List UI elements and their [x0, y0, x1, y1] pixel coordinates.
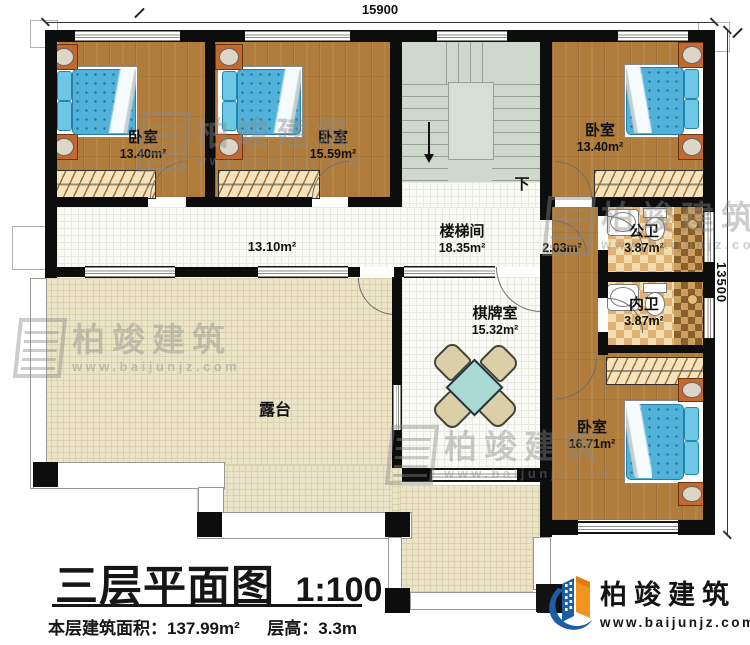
window [392, 385, 402, 430]
wall [394, 267, 404, 277]
wall [540, 197, 555, 207]
room-label-vestibule: 2.03m² [542, 241, 582, 255]
terrace-parapet [33, 462, 225, 489]
window [703, 298, 715, 338]
public-bath-shower-strip [674, 207, 703, 272]
nightstand-icon [678, 482, 706, 506]
blanket-fold [626, 67, 652, 133]
stair-treads [402, 84, 448, 182]
terrace-floor [45, 278, 392, 465]
pillow-icon [684, 441, 699, 475]
room-label-bedroom1: 卧室 13.40m² [120, 130, 167, 161]
terrace-floor-lower-mid [400, 485, 540, 537]
terrace-parapet [410, 592, 539, 610]
wall [390, 42, 402, 197]
window [578, 521, 678, 534]
wall [348, 197, 402, 207]
room-label-stair-hall: 楼梯间 18.35m² [439, 224, 486, 255]
wall [175, 267, 258, 277]
room-label-bedroom4: 卧室 16.71m² [569, 420, 616, 451]
floor-area-value: 137.99m² [167, 619, 240, 638]
floor-height-value: 3.3m [318, 619, 357, 638]
wall [540, 42, 552, 197]
wall [703, 338, 715, 535]
brand-name: 柏竣建筑 [600, 582, 750, 609]
wall [402, 468, 432, 482]
room-label-private-bath: 内卫 3.87m² [624, 297, 664, 328]
column [197, 512, 222, 537]
wall [45, 30, 75, 42]
window [618, 30, 688, 42]
stair-direction-arrowhead-icon [424, 154, 434, 163]
nightstand-icon [678, 134, 706, 160]
room-label-bedroom3: 卧室 13.40m² [577, 123, 624, 154]
wall [45, 267, 85, 277]
wall [392, 277, 402, 385]
wardrobe-icon [594, 170, 704, 199]
wall [392, 430, 402, 468]
dimension-top-line [45, 22, 715, 23]
wardrobe-icon [218, 170, 320, 199]
floor-plan-canvas: 下 卧室 13.40m² [0, 0, 750, 645]
stair-down-label: 下 [514, 176, 529, 193]
title-info: 本层建筑面积：137.99m² 层高：3.3m [48, 614, 357, 639]
window [703, 212, 715, 262]
exterior-platform [12, 226, 48, 270]
terrace-floor-lower-bottom [400, 537, 533, 592]
column [33, 462, 58, 487]
brand-block: 柏竣建筑 www.baijunjz.com [600, 582, 750, 630]
wall [598, 345, 703, 353]
blanket-fold [108, 69, 136, 133]
wall [210, 197, 312, 207]
wall [45, 42, 57, 278]
wall [688, 30, 715, 42]
stair-treads [492, 84, 540, 182]
terrace-parapet [197, 512, 412, 539]
pillow-icon [684, 99, 699, 129]
wall [598, 272, 703, 282]
dimension-right-label: 13500 [714, 262, 729, 303]
wall [348, 267, 360, 277]
nightstand-icon [215, 134, 243, 160]
window [404, 266, 495, 278]
nightstand-icon [678, 378, 706, 402]
room-label-corridor: 13.10m² [248, 240, 296, 255]
floor-drain-icon [687, 219, 698, 230]
pillow-icon [222, 101, 237, 131]
wardrobe-icon [54, 170, 156, 199]
blanket-fold [273, 69, 301, 133]
window [437, 30, 507, 42]
pillow-icon [684, 407, 699, 441]
wall [517, 468, 542, 482]
nightstand-icon [678, 42, 706, 68]
room-label-terrace: 露台 [259, 402, 291, 420]
wall [180, 30, 245, 42]
pillow-icon [684, 69, 699, 99]
pillow-icon [222, 71, 237, 101]
wall [598, 197, 608, 216]
room-label-game-room: 棋牌室 15.32m² [472, 306, 519, 337]
wall [592, 197, 703, 207]
window [75, 30, 180, 42]
wall [507, 30, 618, 42]
blanket-fold [626, 404, 652, 478]
window [258, 266, 348, 278]
wall [350, 30, 437, 42]
private-bath-shower-strip [674, 282, 703, 345]
stair-landing [448, 82, 494, 160]
nightstand-icon [215, 44, 243, 70]
brand-url: www.baijunjz.com [600, 616, 750, 630]
terrace-parapet [388, 537, 402, 590]
wall [552, 520, 578, 535]
window [245, 30, 350, 42]
floor-height-label: 层高： [267, 619, 318, 638]
wall [45, 197, 148, 207]
stair-treads [446, 42, 494, 84]
column [385, 512, 410, 537]
title-underline [52, 604, 362, 607]
room-label-public-bath: 公卫 3.87m² [624, 224, 664, 255]
room-label-bedroom2: 卧室 15.59m² [310, 130, 357, 161]
terrace-parapet [198, 487, 224, 515]
wall [186, 197, 210, 207]
pillow-icon [57, 101, 72, 131]
wall [540, 207, 552, 220]
column [385, 588, 410, 613]
wall [205, 42, 215, 197]
window [432, 468, 517, 482]
leader-mark [732, 28, 743, 39]
brand-logo-icon [544, 568, 600, 634]
wall [703, 42, 715, 212]
terrace-parapet [30, 278, 47, 489]
terrace-floor-lower-left [197, 465, 392, 512]
floor-area-label: 本层建筑面积： [48, 619, 167, 638]
window [85, 266, 175, 278]
pillow-icon [57, 71, 72, 101]
stair-direction-arrow-icon [428, 122, 430, 154]
wall [678, 520, 715, 535]
wall [540, 254, 552, 537]
floor-drain-icon [687, 294, 698, 305]
dimension-top-label: 15900 [45, 2, 715, 17]
